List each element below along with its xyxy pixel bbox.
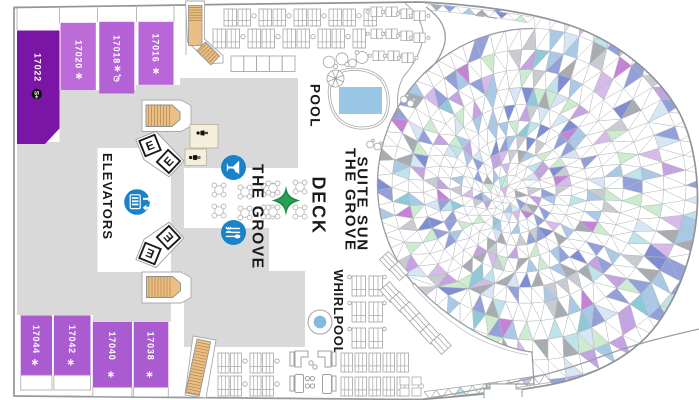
svg-text:WHIRLPOOL: WHIRLPOOL bbox=[331, 270, 346, 356]
svg-text:SUITE SUN: SUITE SUN bbox=[354, 157, 371, 252]
svg-text:DECK: DECK bbox=[309, 177, 329, 235]
svg-text:17040: 17040 bbox=[107, 332, 117, 361]
svg-text:17018: 17018 bbox=[111, 35, 121, 64]
svg-text:S+: S+ bbox=[32, 91, 39, 99]
svg-text:POOL: POOL bbox=[308, 84, 323, 128]
svg-text:17020: 17020 bbox=[74, 40, 84, 69]
svg-text:17042: 17042 bbox=[67, 325, 77, 354]
svg-text:ELEVATORS: ELEVATORS bbox=[100, 153, 115, 240]
svg-text:17038: 17038 bbox=[146, 332, 156, 361]
svg-text:17044: 17044 bbox=[31, 325, 41, 354]
svg-text:17016: 17016 bbox=[151, 34, 161, 63]
svg-text:THE GROVE: THE GROVE bbox=[249, 164, 266, 270]
svg-text:17022: 17022 bbox=[33, 53, 43, 82]
